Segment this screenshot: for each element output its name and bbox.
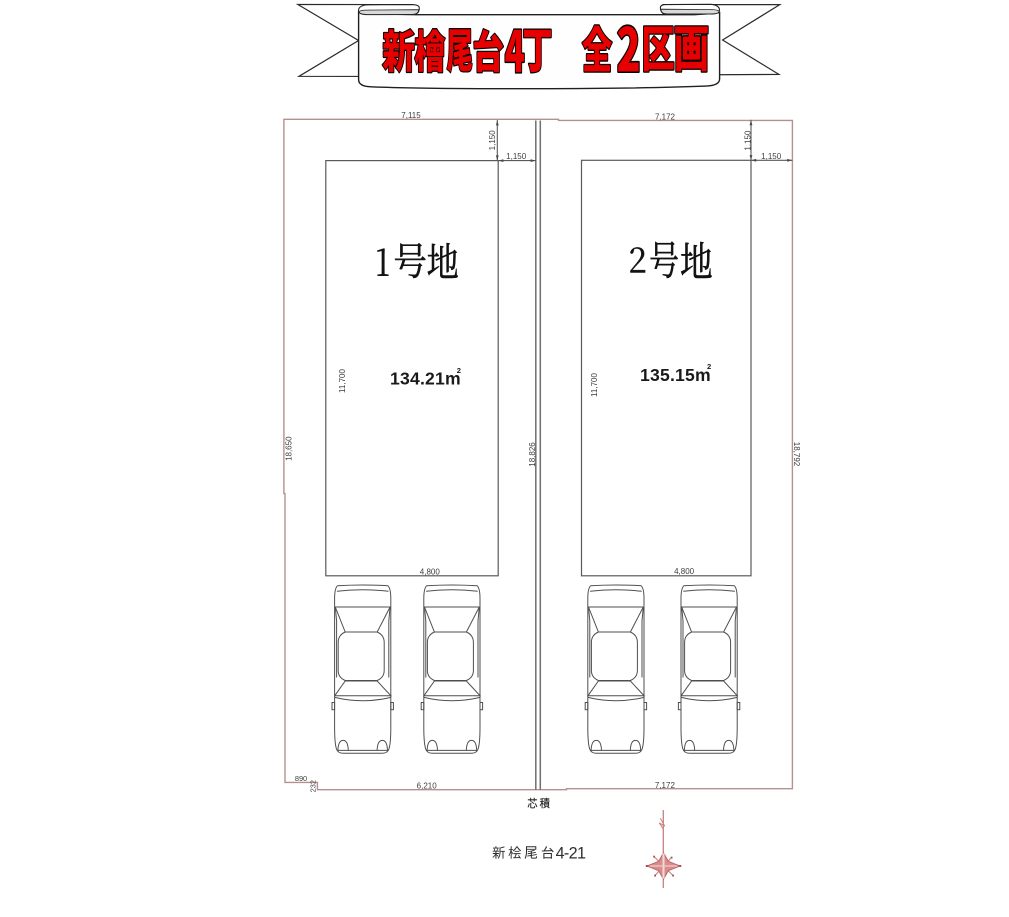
svg-text:7,115: 7,115 — [401, 111, 421, 120]
svg-text:11,700: 11,700 — [590, 373, 599, 397]
svg-text:2: 2 — [707, 362, 711, 371]
svg-text:1,150: 1,150 — [488, 130, 497, 151]
svg-text:1,150: 1,150 — [506, 152, 527, 161]
svg-text:4-21: 4-21 — [556, 845, 586, 863]
svg-text:7,172: 7,172 — [655, 781, 676, 790]
svg-text:890: 890 — [295, 774, 307, 783]
svg-text:1,150: 1,150 — [761, 152, 782, 161]
svg-text:18,792: 18,792 — [792, 442, 801, 467]
svg-text:11,700: 11,700 — [338, 369, 347, 393]
svg-text:18,826: 18,826 — [528, 442, 537, 467]
svg-text:2: 2 — [457, 366, 461, 375]
svg-text:135.15m: 135.15m — [640, 365, 711, 385]
svg-text:1,150: 1,150 — [743, 130, 752, 151]
svg-text:232: 232 — [308, 780, 317, 792]
svg-text:134.21m: 134.21m — [390, 369, 461, 389]
svg-text:7,172: 7,172 — [655, 112, 676, 121]
svg-text:18,650: 18,650 — [285, 436, 294, 461]
svg-text:4,800: 4,800 — [420, 567, 441, 576]
svg-text:4,800: 4,800 — [674, 567, 695, 576]
svg-text:6,210: 6,210 — [417, 782, 438, 791]
